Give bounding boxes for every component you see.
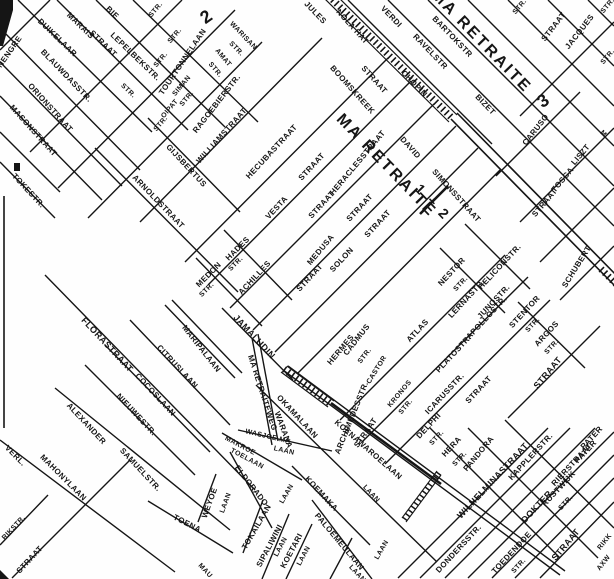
street-label: LEPELBEKSTR. — [109, 31, 162, 82]
street-label: STRAAT — [345, 193, 374, 224]
street-label: PLATOSTR. — [435, 334, 474, 375]
street-label: NIEUWESTR. — [115, 392, 158, 437]
street-label: STR. — [524, 316, 541, 334]
street-label: CASTOR — [366, 355, 389, 386]
street-label: STRAAT — [297, 152, 326, 183]
street-label: CARUSO — [521, 113, 550, 147]
street-label: STRAAT — [540, 11, 567, 43]
street-label: LISZT — [570, 143, 592, 167]
street-label: VERDI — [379, 5, 403, 30]
street-label: LAAN — [279, 483, 296, 505]
street-label: CITRUSLAAN — [155, 344, 199, 390]
street-label: BIZET — [473, 93, 496, 117]
street-label: STR. — [600, 0, 614, 15]
street-label: STR. — [153, 51, 170, 69]
street-label: 2 — [197, 5, 218, 27]
street-label: 3 — [534, 89, 555, 111]
street-label: SCHUBERT — [561, 245, 593, 290]
street-label: JACQUES — [564, 13, 596, 51]
street-label: STRAAT — [363, 209, 392, 240]
map-canvas[interactable]: NENGREDUIKELAARMARAISSTRAATBIELEPELBEKST… — [0, 0, 614, 579]
street-label: BLAUWDASSTR. — [39, 48, 93, 104]
street-label: STR. — [398, 398, 415, 416]
street-label: STR. — [119, 82, 136, 99]
street-label: FLORASTRAAT — [79, 316, 134, 374]
street-label: STR. — [512, 0, 529, 16]
street-label: ATLAS — [405, 318, 430, 344]
street-label: STR. — [227, 40, 244, 57]
street-label: DAVID — [398, 136, 422, 161]
street-label: LAAN — [361, 484, 380, 504]
street-label: VERL. — [3, 444, 27, 468]
street-label: MA RETRAITEWEG — [246, 354, 278, 432]
street-label: LAAN — [219, 492, 233, 514]
street-label: MAHONYLAAN — [38, 453, 87, 502]
street-label: BIE — [104, 5, 120, 21]
street-label: STRAAT — [15, 545, 44, 576]
street-label: STRAAT — [360, 65, 389, 96]
street-label: STR. — [428, 429, 445, 447]
street-label-layer: NENGREDUIKELAARMARAISSTRAATBIELEPELBEKST… — [0, 0, 614, 579]
street-label: STRAAT — [531, 187, 559, 218]
street-label: DOKTER — [520, 489, 554, 525]
street-label: MAU — [197, 562, 214, 579]
street-label: STRAAT — [464, 375, 493, 406]
street-label: STRAAT — [550, 527, 581, 562]
street-label: PALOEMEULAAN — [313, 512, 365, 572]
street-label: KOEMAKA — [303, 475, 339, 513]
street-label: RIKK — [596, 532, 613, 551]
street-label: MEDUSA — [306, 233, 336, 267]
street-label: SAMUELSTR. — [118, 447, 162, 493]
street-label: PATER — [574, 439, 599, 465]
street-label: STR. — [153, 115, 170, 133]
street-label: DONDERSSTR. — [435, 523, 484, 574]
street-label: M — [598, 129, 607, 138]
street-label: VESTA — [264, 195, 289, 221]
street-label: STR. — [148, 1, 165, 19]
street-label: TOENA — [172, 514, 202, 535]
street-label: RIKSTR. — [1, 514, 27, 541]
street-label: HECUBASTRAAT — [245, 123, 299, 180]
street-label: TOKESTR. — [10, 172, 46, 209]
street-label: STR. — [167, 27, 184, 45]
street-label: STR. — [557, 494, 574, 512]
street-label: ACHILLES — [237, 259, 272, 296]
street-label: STR. — [600, 48, 614, 66]
street-label: CHOPIN — [399, 69, 428, 99]
street-label: LAAN — [296, 545, 312, 567]
street-label: ICARUSSTR. — [424, 372, 466, 416]
street-label: MARIPALAAN — [180, 324, 222, 374]
street-label: ELDORADO — [233, 464, 269, 508]
street-label: JULES — [302, 0, 327, 26]
street-label: STR. — [510, 557, 527, 575]
street-label: STRAAT — [532, 355, 563, 390]
street-label: STR. — [357, 347, 373, 365]
street-label: AXW — [596, 554, 612, 572]
street-label: ARNOLDSTRAAT — [131, 174, 186, 231]
street-label: WEYOE — [201, 487, 219, 520]
street-label: STR. — [179, 90, 196, 108]
street-label: STR. — [207, 61, 224, 79]
street-label: RAVELSTR — [411, 33, 449, 71]
street-label: STRAAT — [295, 263, 324, 294]
street-label: ALEXANDER — [65, 402, 107, 447]
street-label: SOLON — [329, 246, 356, 274]
street-label: NENGRE — [0, 35, 24, 70]
street-label: LAAN — [374, 539, 391, 561]
street-label: NOLA HAT — [334, 8, 369, 46]
